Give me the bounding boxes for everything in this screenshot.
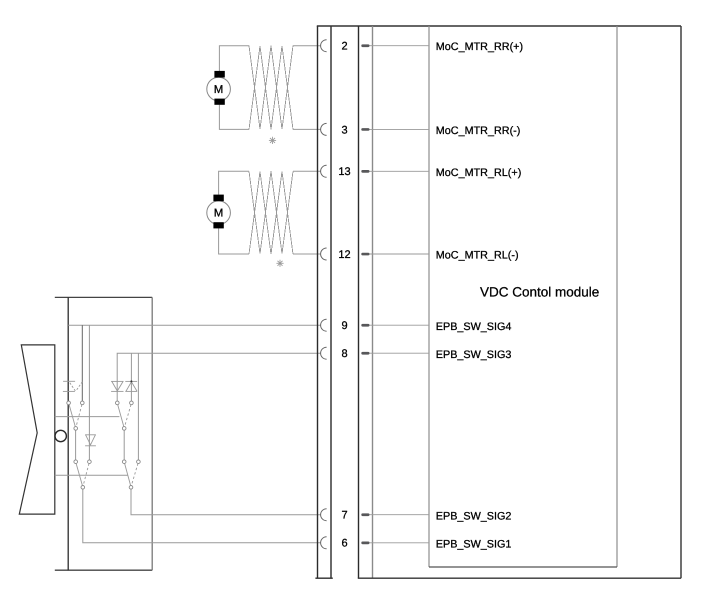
svg-text:M: M xyxy=(214,84,224,96)
svg-text:EPB_SW_SIG2: EPB_SW_SIG2 xyxy=(436,510,512,522)
svg-text:MoC_MTR_RL(+): MoC_MTR_RL(+) xyxy=(436,167,522,179)
svg-text:3: 3 xyxy=(341,124,347,136)
svg-text:MoC_MTR_RR(+): MoC_MTR_RR(+) xyxy=(436,41,523,53)
svg-text:EPB_SW_SIG3: EPB_SW_SIG3 xyxy=(436,349,512,361)
svg-text:VDC Contol module: VDC Contol module xyxy=(480,285,599,300)
svg-text:EPB_SW_SIG4: EPB_SW_SIG4 xyxy=(436,321,512,333)
svg-text:MoC_MTR_RR(-): MoC_MTR_RR(-) xyxy=(436,125,521,137)
svg-text:2: 2 xyxy=(341,41,347,53)
svg-text:6: 6 xyxy=(341,538,347,550)
svg-text:EPB_SW_SIG1: EPB_SW_SIG1 xyxy=(436,538,512,550)
svg-text:M: M xyxy=(214,208,224,220)
svg-text:7: 7 xyxy=(341,510,347,522)
svg-text:MoC_MTR_RL(-): MoC_MTR_RL(-) xyxy=(436,250,519,262)
svg-text:9: 9 xyxy=(341,320,347,332)
svg-text:8: 8 xyxy=(341,348,347,360)
svg-text:13: 13 xyxy=(338,166,350,178)
svg-text:12: 12 xyxy=(338,249,350,261)
